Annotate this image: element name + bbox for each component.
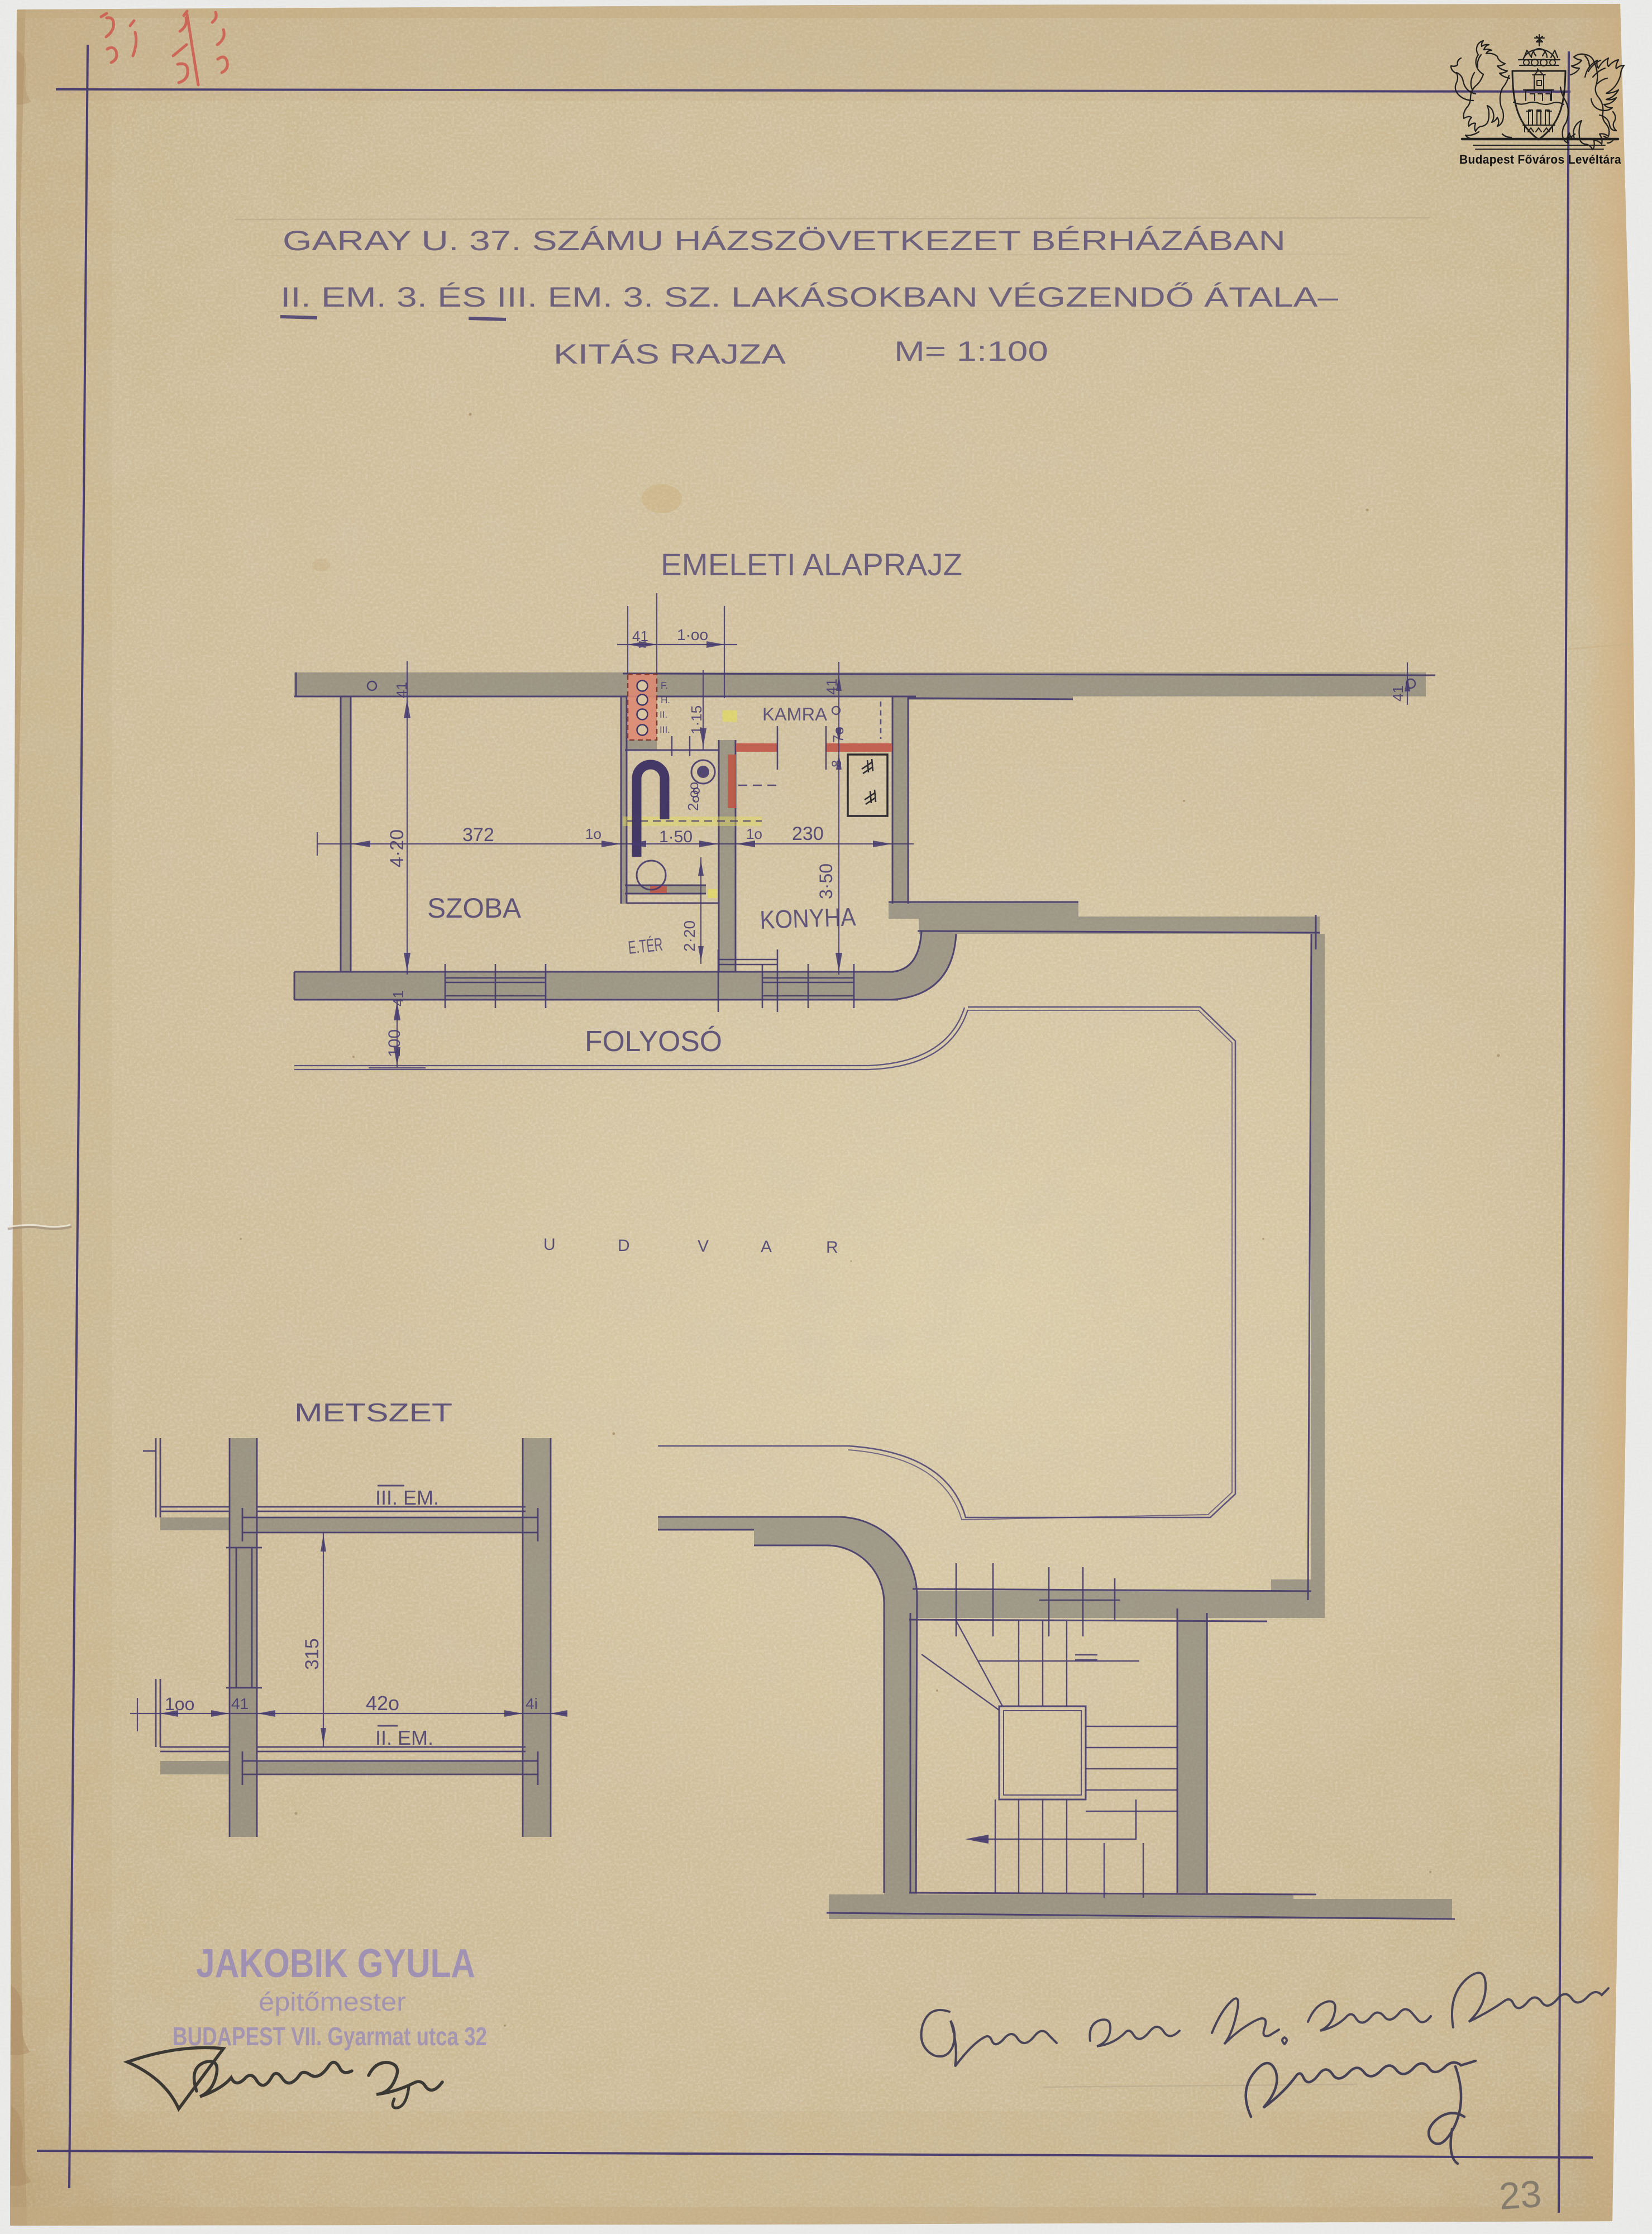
svg-text:23: 23: [1498, 2173, 1543, 2218]
svg-text:41: 41: [1390, 685, 1406, 701]
svg-text:III. EM.: III. EM.: [375, 1486, 439, 1509]
svg-text:41: 41: [393, 682, 410, 698]
svg-text:JAKOBIK GYULA: JAKOBIK GYULA: [196, 1941, 475, 1986]
svg-text:4·20: 4·20: [386, 829, 408, 867]
svg-text:KITÁS RAJZA: KITÁS RAJZA: [553, 338, 786, 370]
svg-text:100: 100: [385, 1029, 404, 1057]
svg-text:41: 41: [390, 990, 407, 1006]
svg-text:M= 1:100: M= 1:100: [894, 336, 1048, 367]
svg-text:SZOBA: SZOBA: [427, 892, 522, 924]
svg-text:1o: 1o: [746, 825, 762, 842]
svg-text:2·20: 2·20: [681, 920, 698, 952]
svg-text:41: 41: [231, 1695, 249, 1712]
svg-text:372: 372: [462, 824, 494, 846]
svg-text:U: U: [543, 1235, 556, 1254]
svg-text:1oo: 1oo: [165, 1694, 194, 1714]
svg-text:METSZET: METSZET: [294, 1398, 452, 1427]
svg-text:A: A: [761, 1238, 772, 1256]
svg-text:41: 41: [632, 628, 648, 645]
svg-text:V: V: [698, 1237, 709, 1256]
svg-text:R: R: [826, 1238, 838, 1257]
svg-text:3·50: 3·50: [816, 863, 836, 899]
svg-text:4i: 4i: [526, 1695, 538, 1712]
svg-text:1·15: 1·15: [688, 705, 705, 734]
svg-text:1·oo: 1·oo: [677, 626, 708, 643]
svg-text:II. EM. 3. ÉS III. EM. 3. SZ.: II. EM. 3. ÉS III. EM. 3. SZ. LAKÁSOKBAN…: [280, 281, 1338, 313]
svg-text:1o: 1o: [585, 825, 601, 842]
svg-text:2·oo: 2·oo: [685, 782, 701, 811]
svg-text:1·50: 1·50: [659, 828, 693, 846]
svg-text:KONYHA: KONYHA: [760, 902, 857, 934]
svg-text:H.: H.: [661, 695, 670, 705]
svg-text:BUDAPEST VII. Gyarmat utca 32: BUDAPEST VII. Gyarmat utca 32: [173, 2022, 487, 2051]
svg-text:8: 8: [829, 760, 844, 767]
svg-text:42o: 42o: [366, 1692, 399, 1715]
svg-text:41: 41: [823, 679, 840, 695]
svg-text:KAMRA: KAMRA: [762, 704, 828, 724]
svg-text:II.: II.: [660, 709, 667, 720]
svg-text:315: 315: [302, 1638, 323, 1670]
svg-text:III.: III.: [660, 724, 670, 735]
svg-text:II. EM.: II. EM.: [375, 1726, 433, 1749]
svg-text:E.TÉR: E.TÉR: [627, 934, 663, 958]
svg-text:7o: 7o: [830, 727, 847, 743]
svg-text:GARAY U. 37. SZÁMU HÁZSZÖVETKE: GARAY U. 37. SZÁMU HÁZSZÖVETKEZET BÉRHÁZ…: [283, 225, 1286, 256]
svg-text:épitőmester: épitőmester: [259, 1987, 406, 2016]
svg-text:Budapest Főváros Levéltára: Budapest Főváros Levéltára: [1459, 152, 1621, 166]
svg-text:FOLYOSÓ: FOLYOSÓ: [585, 1025, 722, 1058]
svg-text:F.: F.: [661, 680, 668, 691]
svg-text:230: 230: [792, 823, 824, 844]
svg-text:EMELETI ALAPRAJZ: EMELETI ALAPRAJZ: [661, 547, 962, 582]
svg-text:D: D: [618, 1237, 630, 1255]
